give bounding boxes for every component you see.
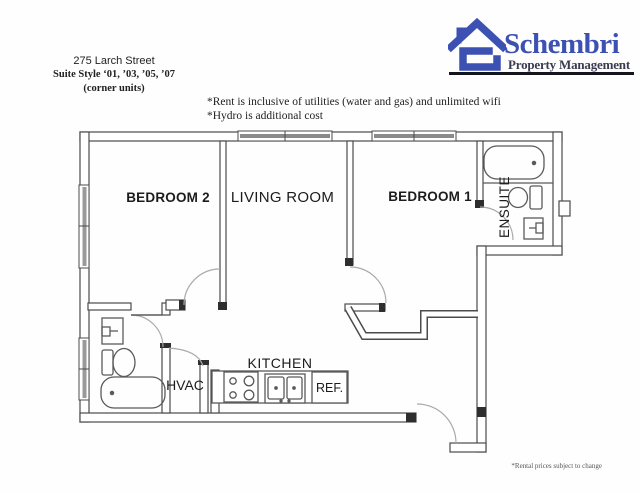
kitchen-stove bbox=[224, 372, 258, 402]
floorplan-page: 275 Larch Street Suite Style ‘01, ’03, ’… bbox=[0, 0, 640, 492]
bathroom-sink bbox=[102, 318, 123, 344]
fridge-label: REF. bbox=[313, 381, 346, 395]
bathroom-toilet bbox=[102, 349, 135, 377]
angled-wall bbox=[348, 308, 478, 336]
ensuite-toilet bbox=[509, 186, 543, 209]
bathroom-fixtures bbox=[101, 318, 165, 408]
room-label-bedroom-2: BEDROOM 2 bbox=[110, 190, 226, 205]
kitchen-sink bbox=[265, 374, 305, 403]
room-label-hvac: HVAC bbox=[162, 377, 208, 393]
ensuite-sink bbox=[524, 218, 543, 239]
room-label-living-room: LIVING ROOM bbox=[225, 189, 340, 206]
outer-walls bbox=[80, 132, 562, 452]
ensuite-fixtures bbox=[483, 146, 553, 239]
ensuite-bathtub bbox=[484, 146, 544, 179]
room-label-ensuite: ENSUITE bbox=[497, 174, 512, 240]
door-arcs bbox=[131, 207, 513, 443]
room-label-bedroom-1: BEDROOM 1 bbox=[372, 189, 488, 204]
room-label-kitchen: KITCHEN bbox=[240, 355, 320, 371]
floor-plan-drawing bbox=[0, 0, 640, 492]
bathroom-bathtub bbox=[101, 377, 165, 408]
rental-footnote: *Rental prices subject to change bbox=[470, 462, 602, 470]
